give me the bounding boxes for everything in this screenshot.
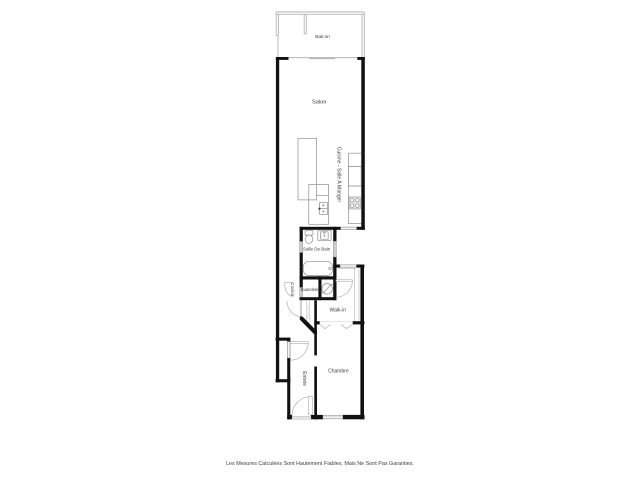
svg-text:Les Mesures Calculées Sont Hau: Les Mesures Calculées Sont Hautement Fia…: [226, 461, 414, 467]
svg-text:Salle De Bain: Salle De Bain: [303, 247, 331, 252]
svg-text:Entrée: Entrée: [301, 371, 307, 386]
svg-text:Chambre: Chambre: [328, 369, 349, 375]
svg-text:Walk-in: Walk-in: [330, 307, 347, 313]
svg-text:Couloir: Couloir: [290, 282, 295, 296]
svg-text:Salon: Salon: [312, 99, 326, 105]
svg-text:Buanderie: Buanderie: [301, 287, 320, 292]
svg-text:Balcon: Balcon: [315, 34, 330, 40]
svg-text:Cuisine - Salle À Manger: Cuisine - Salle À Manger: [335, 147, 342, 203]
